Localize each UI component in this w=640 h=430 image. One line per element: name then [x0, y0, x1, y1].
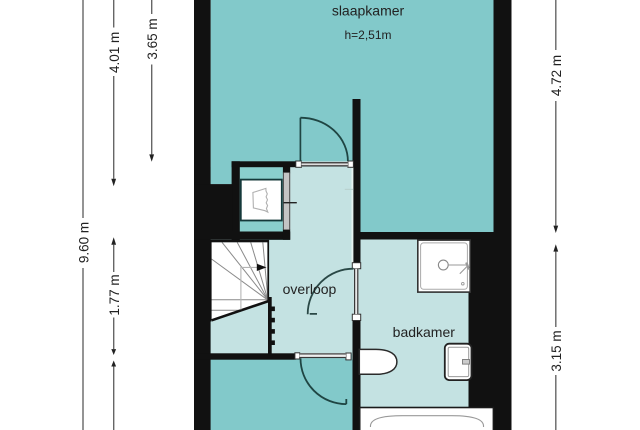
svg-text:h=2,51m: h=2,51m: [344, 28, 391, 42]
svg-text:3.65 m: 3.65 m: [145, 18, 160, 59]
svg-text:4.01 m: 4.01 m: [107, 32, 122, 73]
svg-text:slaapkamer: slaapkamer: [332, 3, 405, 19]
svg-text:3.15 m: 3.15 m: [549, 330, 564, 371]
svg-text:4.72 m: 4.72 m: [549, 55, 564, 96]
svg-text:overloop: overloop: [283, 281, 337, 297]
svg-text:badkamer: badkamer: [393, 324, 456, 340]
svg-text:1.77 m: 1.77 m: [107, 274, 122, 315]
svg-text:9.60 m: 9.60 m: [76, 222, 91, 263]
